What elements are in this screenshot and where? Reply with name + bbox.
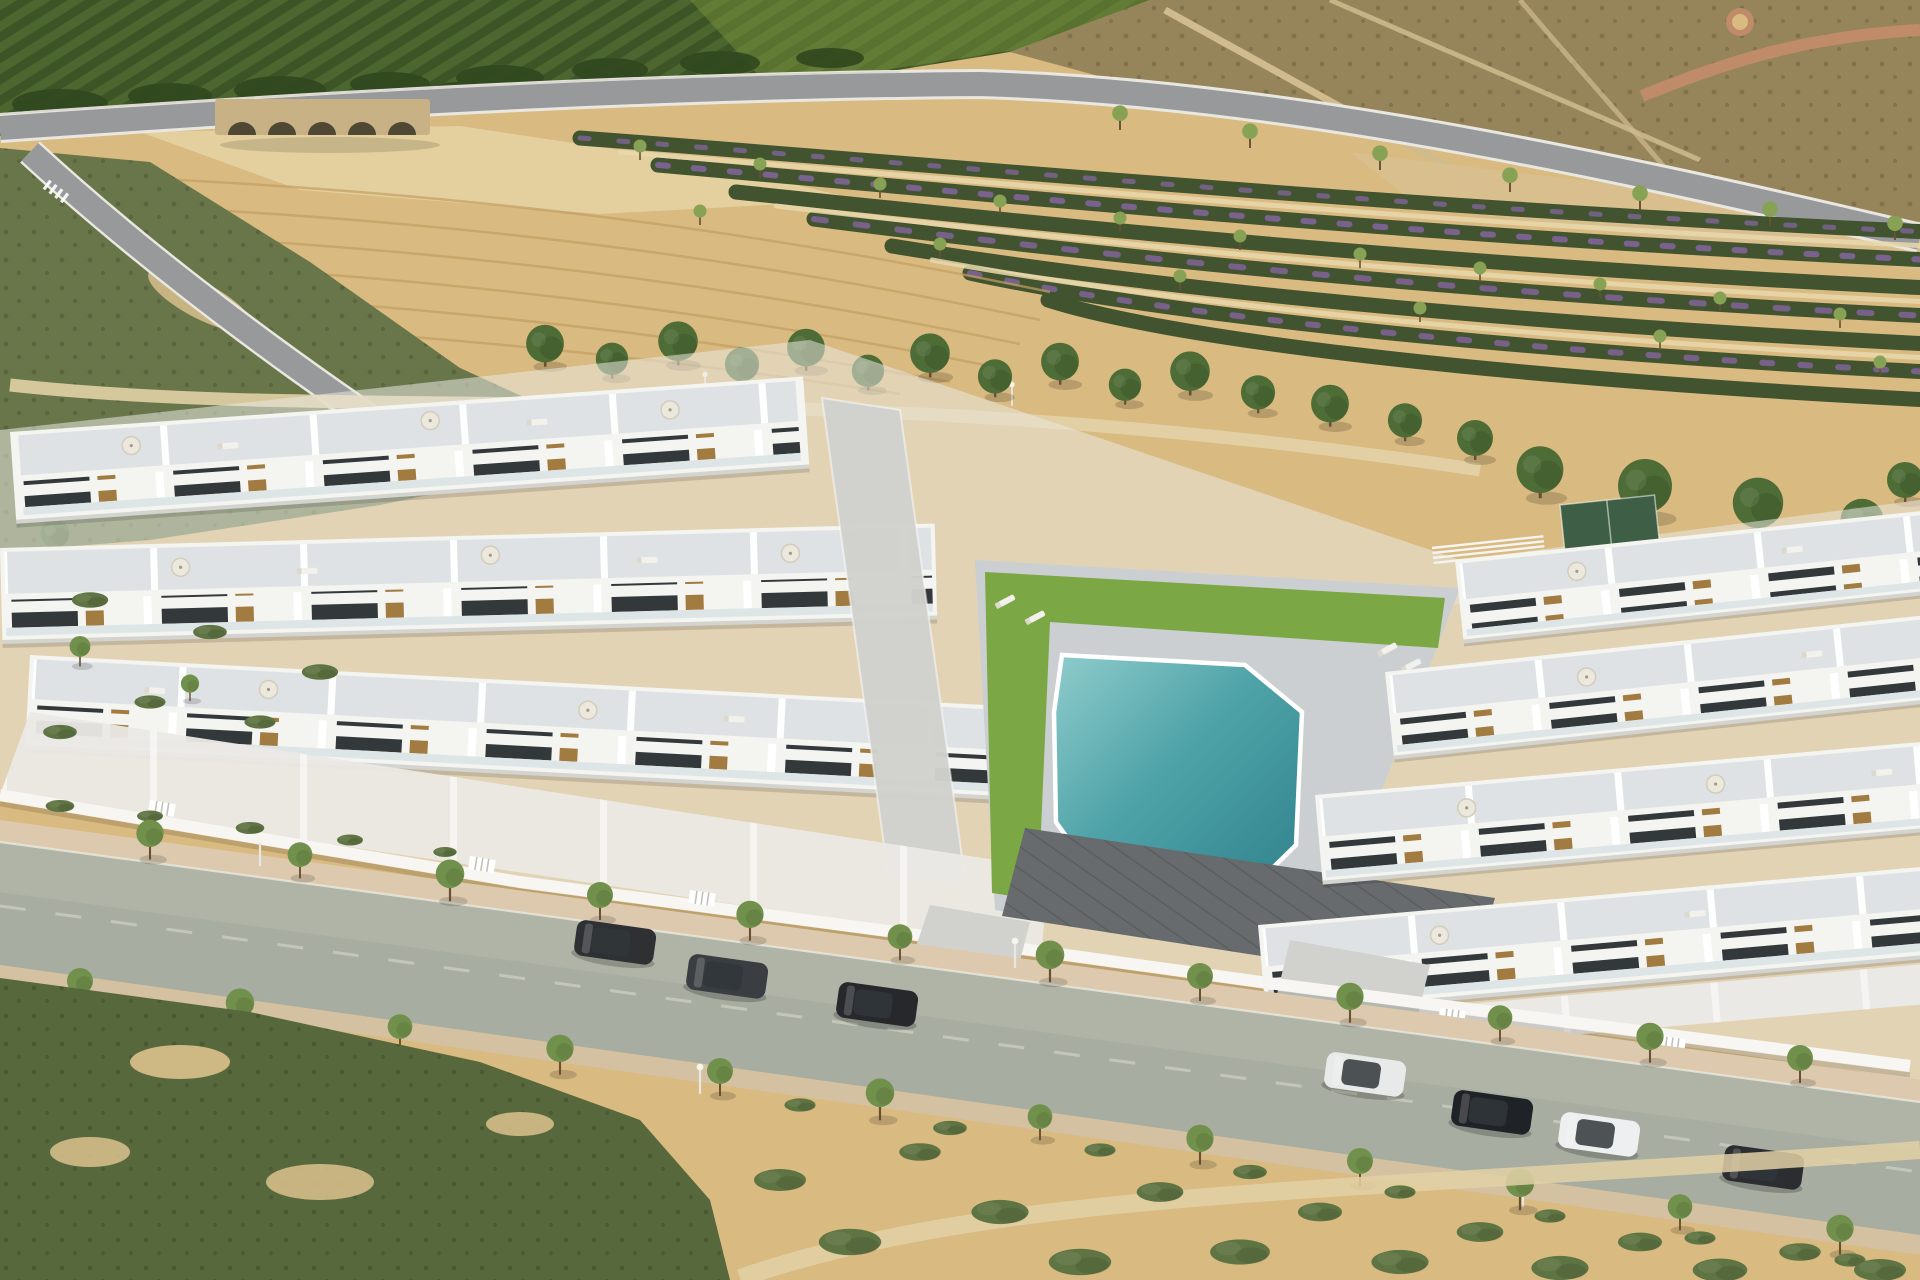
bush bbox=[1531, 1256, 1588, 1280]
bush bbox=[1210, 1239, 1270, 1264]
parasol bbox=[421, 411, 440, 430]
aerial-photo bbox=[0, 0, 1920, 1280]
parasol bbox=[481, 546, 499, 564]
bush bbox=[1298, 1203, 1342, 1222]
bush bbox=[193, 625, 227, 639]
roundabout bbox=[1729, 11, 1751, 33]
bush bbox=[1371, 1250, 1428, 1274]
sun-lounger bbox=[636, 557, 657, 564]
bush bbox=[1049, 1249, 1111, 1275]
sun-lounger bbox=[297, 568, 318, 575]
parasol bbox=[781, 544, 799, 562]
bush bbox=[971, 1200, 1028, 1224]
bush bbox=[899, 1143, 941, 1161]
bush bbox=[43, 725, 77, 739]
bush bbox=[134, 695, 165, 708]
bush bbox=[754, 1169, 806, 1191]
bush bbox=[1618, 1233, 1662, 1252]
bush bbox=[337, 835, 363, 846]
bush bbox=[933, 1121, 967, 1135]
parasol bbox=[1457, 798, 1477, 818]
bush bbox=[1854, 1259, 1906, 1280]
parasol bbox=[171, 558, 189, 576]
bush bbox=[1084, 1143, 1115, 1156]
bush bbox=[1137, 1182, 1184, 1202]
bush bbox=[1779, 1243, 1821, 1261]
bush bbox=[1534, 1209, 1565, 1222]
parasol bbox=[1430, 925, 1450, 945]
sun-lounger bbox=[144, 687, 165, 694]
parasol bbox=[660, 400, 679, 419]
scene-canvas bbox=[0, 0, 1920, 1280]
parasol bbox=[259, 680, 278, 699]
bush bbox=[1457, 1222, 1504, 1242]
bush bbox=[1684, 1231, 1715, 1244]
sun-lounger bbox=[723, 715, 744, 722]
bush bbox=[302, 664, 338, 679]
bush bbox=[46, 800, 75, 812]
bush bbox=[244, 715, 275, 728]
bush bbox=[236, 822, 265, 834]
bush bbox=[1384, 1185, 1415, 1198]
bush bbox=[1233, 1165, 1267, 1179]
stone-bridge bbox=[215, 99, 440, 153]
bush bbox=[819, 1229, 881, 1255]
bush bbox=[784, 1098, 815, 1111]
parasol bbox=[1706, 774, 1726, 794]
bush bbox=[72, 592, 108, 607]
bush bbox=[433, 847, 456, 857]
parasol bbox=[578, 701, 597, 720]
parasol bbox=[122, 436, 141, 455]
